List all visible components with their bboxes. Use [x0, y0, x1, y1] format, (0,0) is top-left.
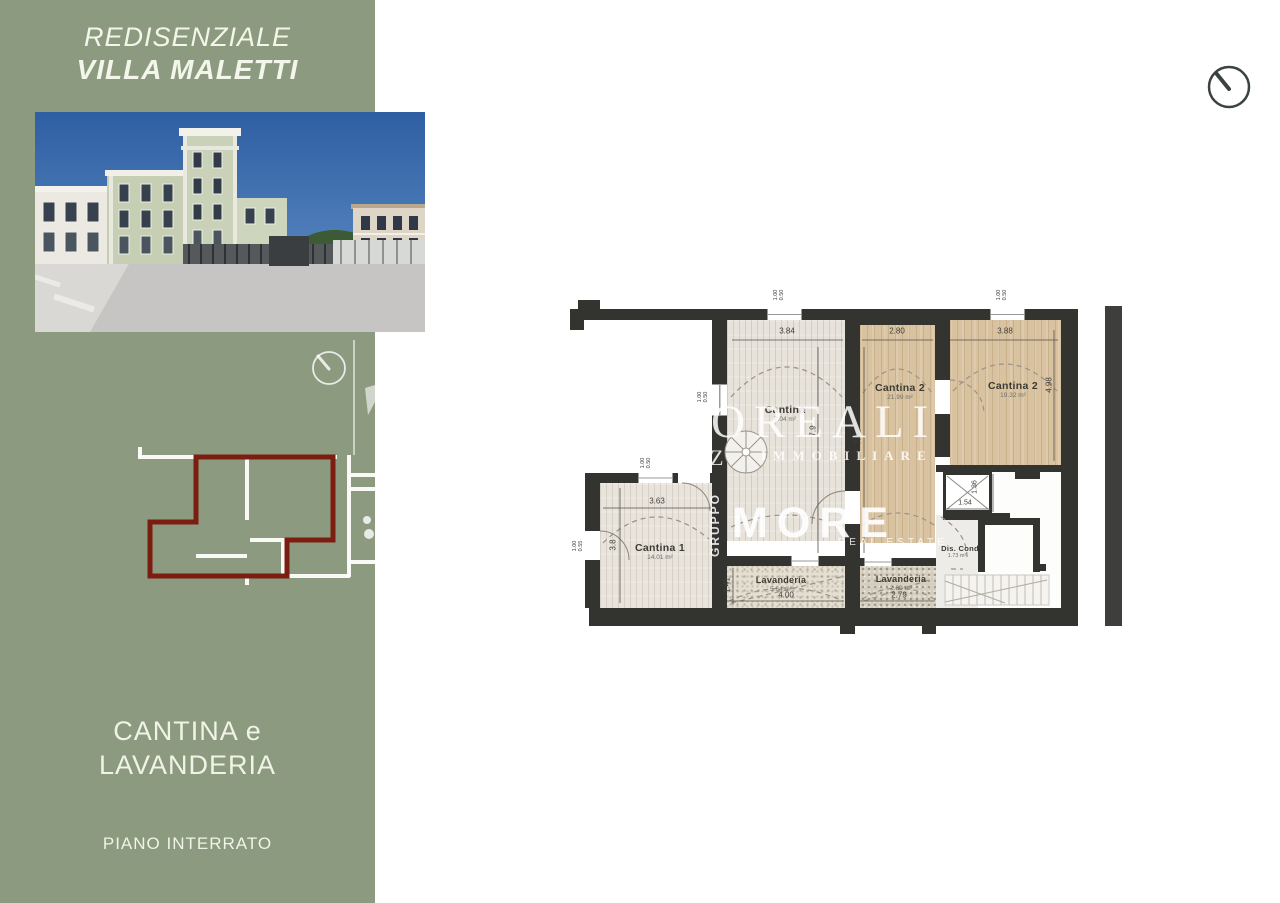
dim-label: 4.98 [1045, 377, 1054, 393]
clock-icon [313, 352, 345, 384]
room-area-cantina2-right: 19.32 m² [1000, 392, 1026, 399]
opening-dim: 1.00 0.50 [773, 290, 785, 301]
floor-label: PIANO INTERRATO [0, 834, 375, 854]
dim-label: 3.63 [649, 497, 665, 506]
opening-dim-b: 0.50 [1002, 290, 1008, 301]
villa-render-graphic [35, 112, 425, 332]
opening-dim: 1.00 0.50 [697, 392, 709, 403]
residence-title: VILLA MALETTI [0, 54, 375, 86]
opening-dim: 1.00 0.50 [640, 458, 652, 469]
residence-subtitle: REDISENZIALE [0, 22, 375, 53]
room-label-cantina2-right: Cantina 2 [988, 380, 1038, 392]
highlighted-unit-outline [150, 457, 333, 576]
ghost-fragment [365, 385, 375, 415]
plan-caption-line2: LAVANDERIA [0, 750, 375, 781]
dim-label: 2.80 [889, 327, 905, 336]
watermark-brand-sub: IMMOBILIARE [761, 448, 933, 464]
opening-dim-b: 0.50 [646, 458, 652, 469]
opening-dim-b: 0.50 [703, 392, 709, 403]
plan-caption-line1: CANTINA e [0, 716, 375, 747]
opening-dim-b: 0.50 [779, 290, 785, 301]
room-area-dis-cond: 1.73 m² [948, 553, 967, 559]
dim-label: 3.84 [779, 327, 795, 336]
room-label-lavanderia1: Lavanderia [756, 575, 807, 585]
watermark-brand: OREALI [711, 395, 937, 449]
dim-label: 1.41 [723, 577, 732, 593]
room-area-cantina1: 14.01 m² [647, 554, 673, 561]
dim-label: 3.88 [997, 327, 1013, 336]
floor-plan: 3.84 2.80 3.88 7.9 7.62 4.98 3.63 3.8 1.… [565, 285, 1140, 645]
room-label-cantina1: Cantina 1 [635, 542, 685, 554]
dim-label: 1.54 [958, 500, 972, 507]
room-label-cantina2-left: Cantina 2 [875, 382, 925, 394]
unit-locator-minimap [130, 338, 380, 590]
opening-dim: 1.00 0.55 [572, 541, 584, 552]
clock-icon [1204, 63, 1254, 113]
watermark-brand2-sub: REAL ESTATE [838, 537, 948, 548]
watermark-gruppo: GRUPPO [708, 493, 722, 557]
room-area-lavanderia2: 2.60 m² [890, 585, 912, 592]
opening-dim: 1.00 0.50 [996, 290, 1008, 301]
opening-dim-b: 0.55 [578, 541, 584, 552]
property-photo [35, 112, 425, 332]
dim-label: 3.8 [609, 539, 618, 550]
room-area-lavanderia1: 5.64 m² [770, 586, 792, 593]
room-label-lavanderia2: Lavanderia [876, 574, 927, 584]
dim-label: 1.36 [972, 480, 979, 494]
brochure-page: REDISENZIALE VILLA MALETTI [0, 0, 1280, 903]
